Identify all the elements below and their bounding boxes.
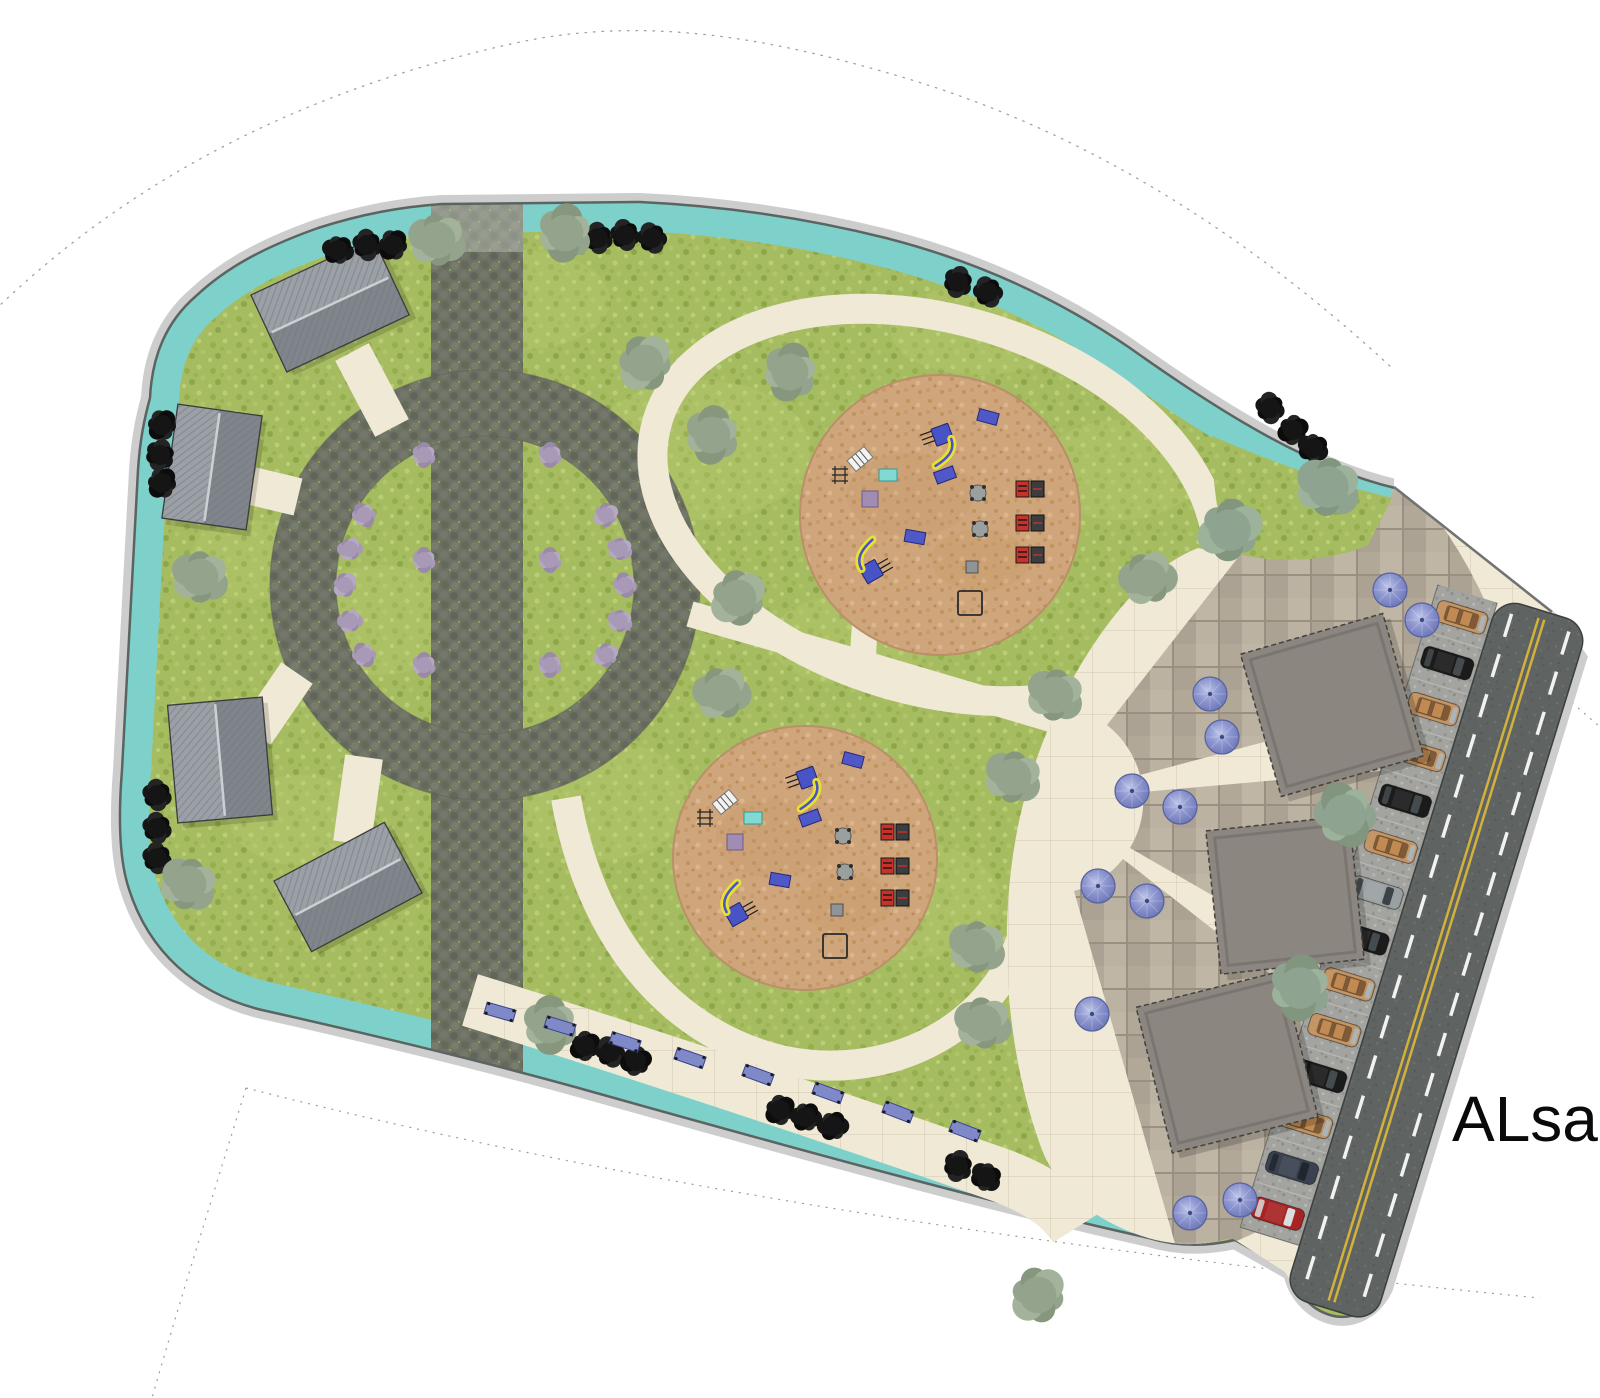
pavilion-spoke (352, 757, 364, 843)
pavilion (168, 697, 278, 829)
patio-umbrella (1193, 677, 1227, 711)
patio-umbrella (1163, 790, 1197, 824)
play-equipment-climb-frame (832, 466, 848, 484)
olive-tree (1012, 1268, 1063, 1323)
site-plan-canvas (0, 0, 1600, 1398)
play-equipment-purple-mat (862, 491, 878, 507)
street-name-label: ALsah (1452, 1082, 1600, 1156)
black-tree (1255, 392, 1284, 424)
playground (800, 375, 1080, 655)
flower-shrub (608, 610, 632, 632)
patio-umbrella (1130, 884, 1164, 918)
boundary-dotted-left (152, 1088, 246, 1398)
sand-shading (931, 529, 1029, 591)
play-equipment-spring (972, 521, 988, 537)
olive-tree (949, 921, 1005, 973)
patio-umbrella (1081, 869, 1115, 903)
play-equipment-teal-table (879, 469, 897, 481)
play-equipment-spring (837, 864, 853, 880)
patio-umbrella (1223, 1183, 1257, 1217)
sand-shading (799, 874, 891, 932)
play-equipment-spring (970, 485, 986, 501)
black-tree (1298, 434, 1328, 462)
patio-umbrella (1405, 603, 1439, 637)
playground (673, 726, 937, 990)
olive-tree (408, 214, 466, 265)
central-stone-road (431, 196, 523, 1082)
play-equipment-purple-mat (727, 834, 743, 850)
play-equipment-gray-box (966, 561, 978, 573)
pavilion (161, 404, 267, 536)
play-equipment-gray-box (831, 904, 843, 916)
pavilion-spoke (252, 486, 298, 497)
play-equipment-teal-table (744, 812, 762, 824)
flower-shrub (608, 538, 632, 560)
olive-tree (172, 551, 228, 603)
play-equipment-climb-frame (697, 809, 713, 827)
olive-tree (954, 997, 1012, 1048)
patio-umbrella (1205, 720, 1239, 754)
patio-umbrella (1373, 573, 1407, 607)
patio-umbrella (1173, 1196, 1207, 1230)
patio-umbrella (1075, 997, 1109, 1031)
patio-umbrella (1115, 774, 1149, 808)
play-equipment-spring (835, 828, 851, 844)
